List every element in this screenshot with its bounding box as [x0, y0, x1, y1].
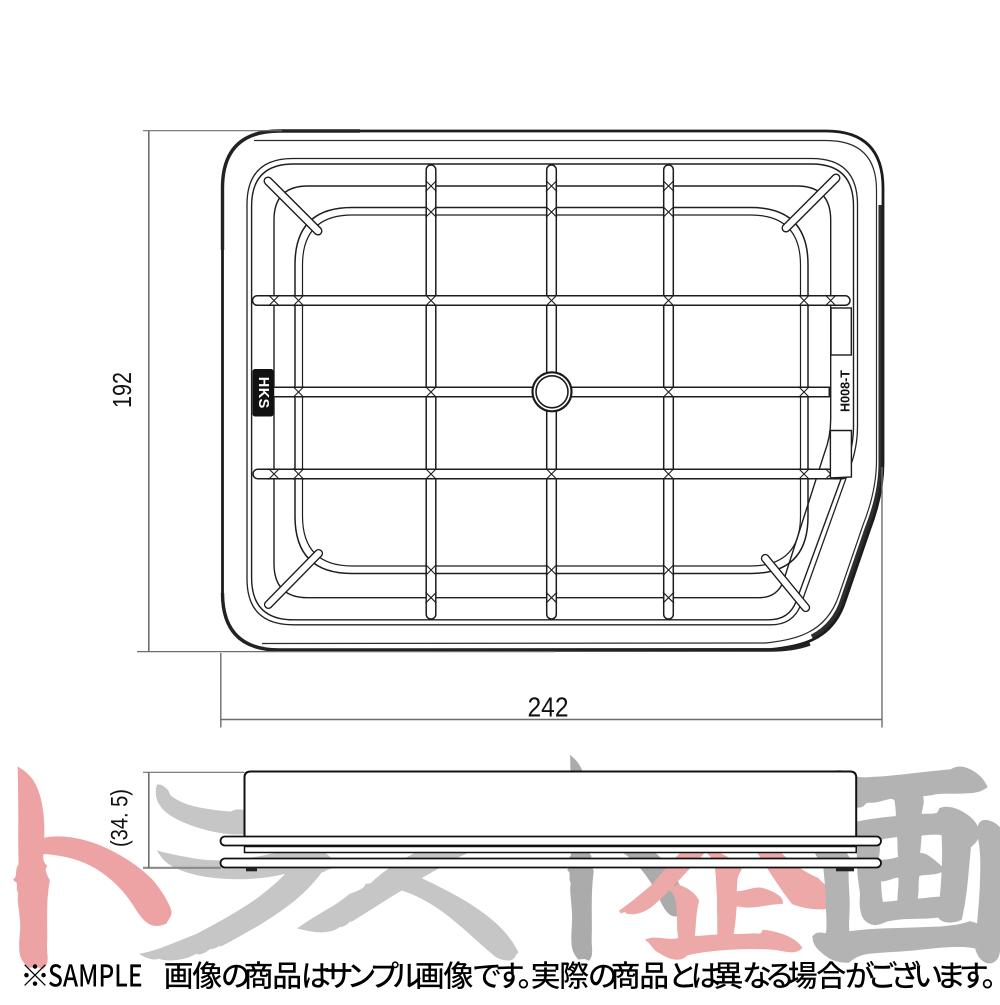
svg-text:H008-T: H008-T [839, 370, 853, 412]
svg-text:(34. 5): (34. 5) [107, 789, 134, 847]
svg-text:192: 192 [107, 372, 137, 408]
svg-text:242: 242 [528, 692, 569, 723]
svg-text:HKS: HKS [255, 377, 271, 409]
